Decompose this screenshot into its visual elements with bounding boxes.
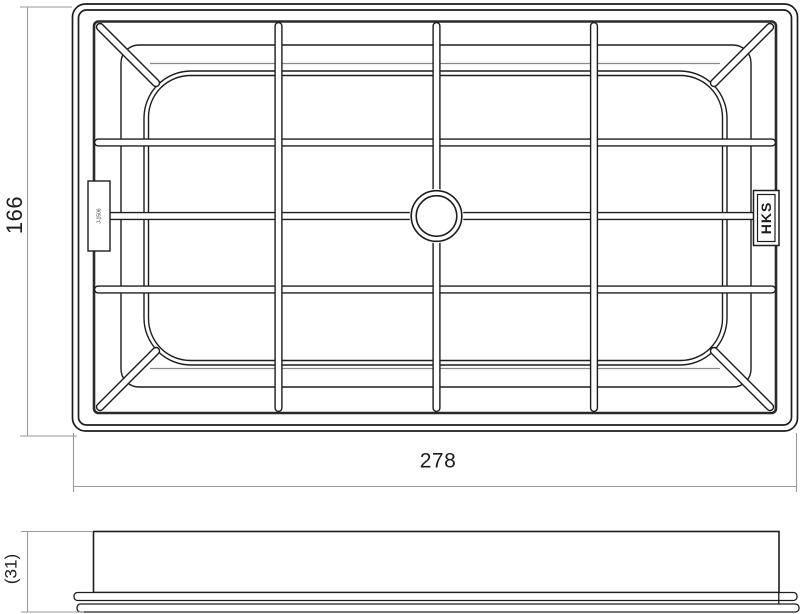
filter-technical-drawing [0, 0, 800, 614]
dimension-166-lines [20, 7, 77, 436]
center-hub [410, 189, 464, 243]
height-dimension-label: 166 [4, 196, 26, 234]
side-view [74, 532, 799, 613]
brand-badge-text: HKS [759, 202, 773, 235]
width-dimension-label: 278 [420, 451, 457, 472]
drawing-canvas: 166 278 (31) HKS J-1506 [0, 0, 800, 614]
thickness-dimension-label: (31) [3, 554, 20, 584]
mould-tab-marking: J-1506 [98, 208, 103, 223]
